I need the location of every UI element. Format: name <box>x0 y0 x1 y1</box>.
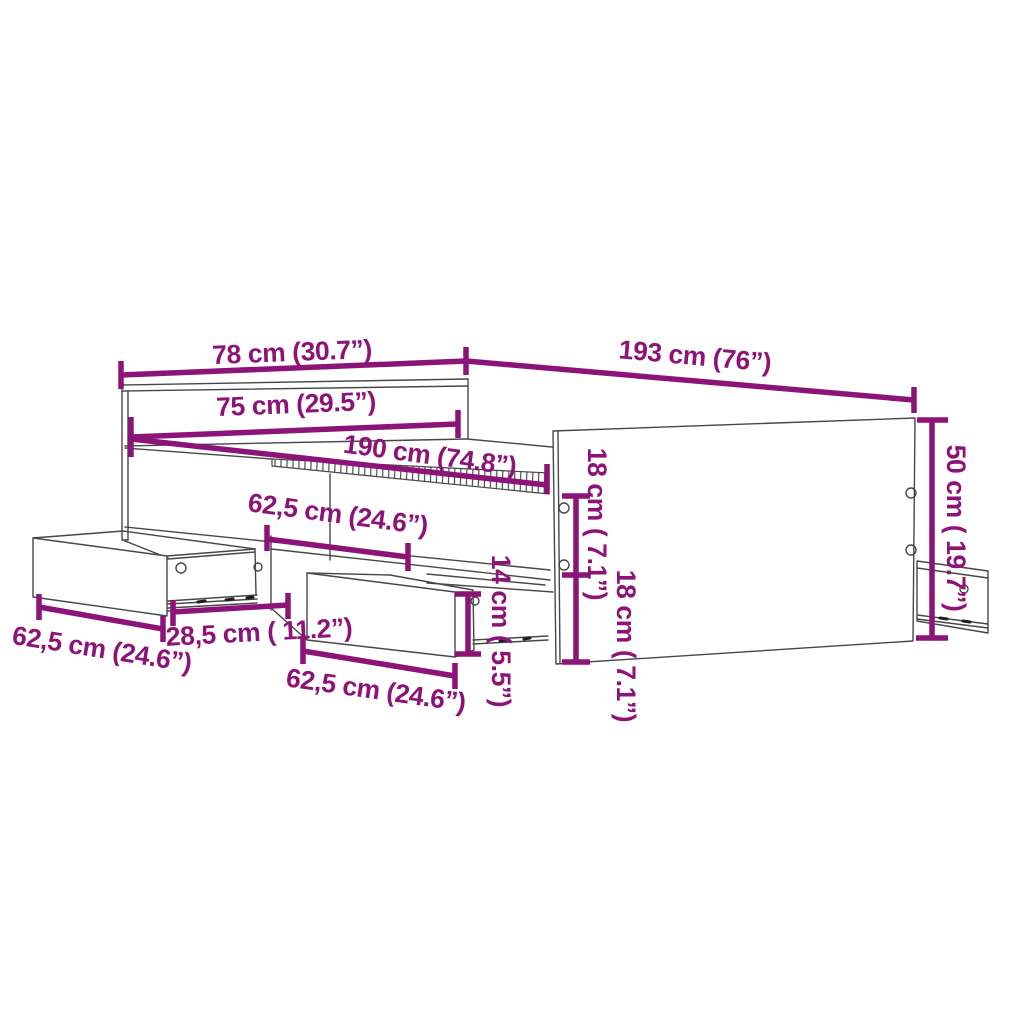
drawer-side-back-edge <box>473 590 474 650</box>
slide-stud <box>226 599 233 600</box>
dim-label-footboard-height: 50 cm ( 19.7”) <box>941 445 971 612</box>
dim-line <box>131 424 458 437</box>
dim-label-middle-drawer-width: 62,5 cm (24.6”) <box>284 663 468 718</box>
drawer-left-side-top-edge <box>33 531 123 538</box>
dim-label-inner-width: 75 cm (29.5”) <box>216 386 377 422</box>
slide-stud <box>247 597 253 598</box>
dim-drawer-front-height <box>455 594 481 654</box>
dim-label-drawer-front-height: 14 cm ( 5.5”) <box>486 555 516 707</box>
drawer-side-hole <box>471 597 479 605</box>
drawer-side-back-edge <box>255 549 256 595</box>
slide-stud <box>940 618 947 619</box>
dim-label-drawer-pullout-depth: 28,5 cm ( 11.2”) <box>165 612 353 652</box>
slide-stud <box>524 638 530 639</box>
dim-label-frame-length: 193 cm (76”) <box>618 334 773 377</box>
dim-label-side-rail-drawer-width: 62,5 cm (24.6”) <box>246 487 429 540</box>
lower-rail-top-edge <box>427 574 545 585</box>
dim-label-lower-rail-height: 18 cm ( 7.1”) <box>611 570 641 722</box>
drawer-side-hole <box>176 563 186 573</box>
slide-stud <box>963 621 970 622</box>
bed-frame-diagram-canvas: 78 cm (30.7”) 193 cm (76”) 75 cm (29.5”)… <box>0 0 1024 1024</box>
dim-label-upper-rail-height: 18 cm ( 7.1”) <box>582 448 612 600</box>
dim-label-headboard-width: 78 cm (30.7”) <box>212 334 373 370</box>
product-dimension-diagram: 78 cm (30.7”) 193 cm (76”) 75 cm (29.5”)… <box>0 0 1024 1024</box>
dim-line <box>267 539 408 557</box>
headboard-top-front-edge <box>122 379 468 385</box>
slide-stud <box>198 601 205 602</box>
